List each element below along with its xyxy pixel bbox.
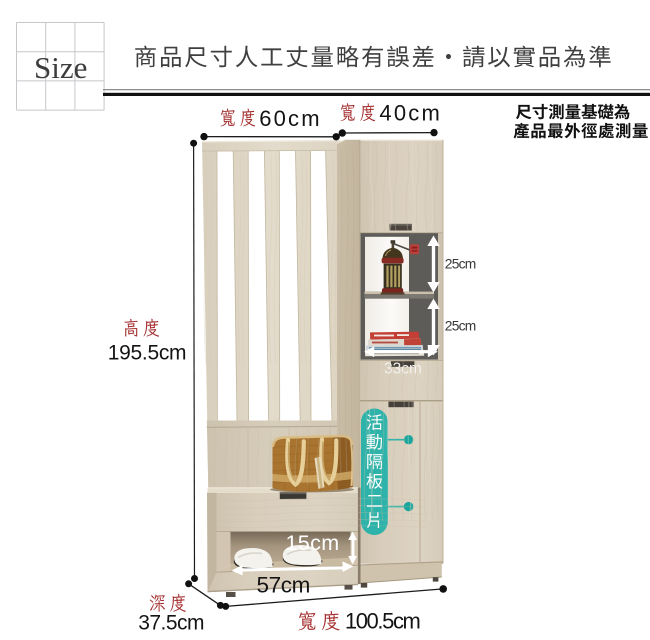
svg-text:37.5cm: 37.5cm (138, 612, 204, 635)
svg-text:60cm: 60cm (259, 106, 322, 131)
svg-text:25cm: 25cm (445, 318, 476, 333)
svg-text:40cm: 40cm (379, 101, 442, 126)
svg-text:25cm: 25cm (445, 257, 476, 272)
svg-text:100.5cm: 100.5cm (345, 609, 420, 634)
svg-text:Size: Size (34, 50, 87, 85)
svg-text:195.5cm: 195.5cm (108, 342, 186, 365)
svg-text:57cm: 57cm (257, 573, 310, 598)
svg-text:15cm: 15cm (286, 531, 340, 555)
